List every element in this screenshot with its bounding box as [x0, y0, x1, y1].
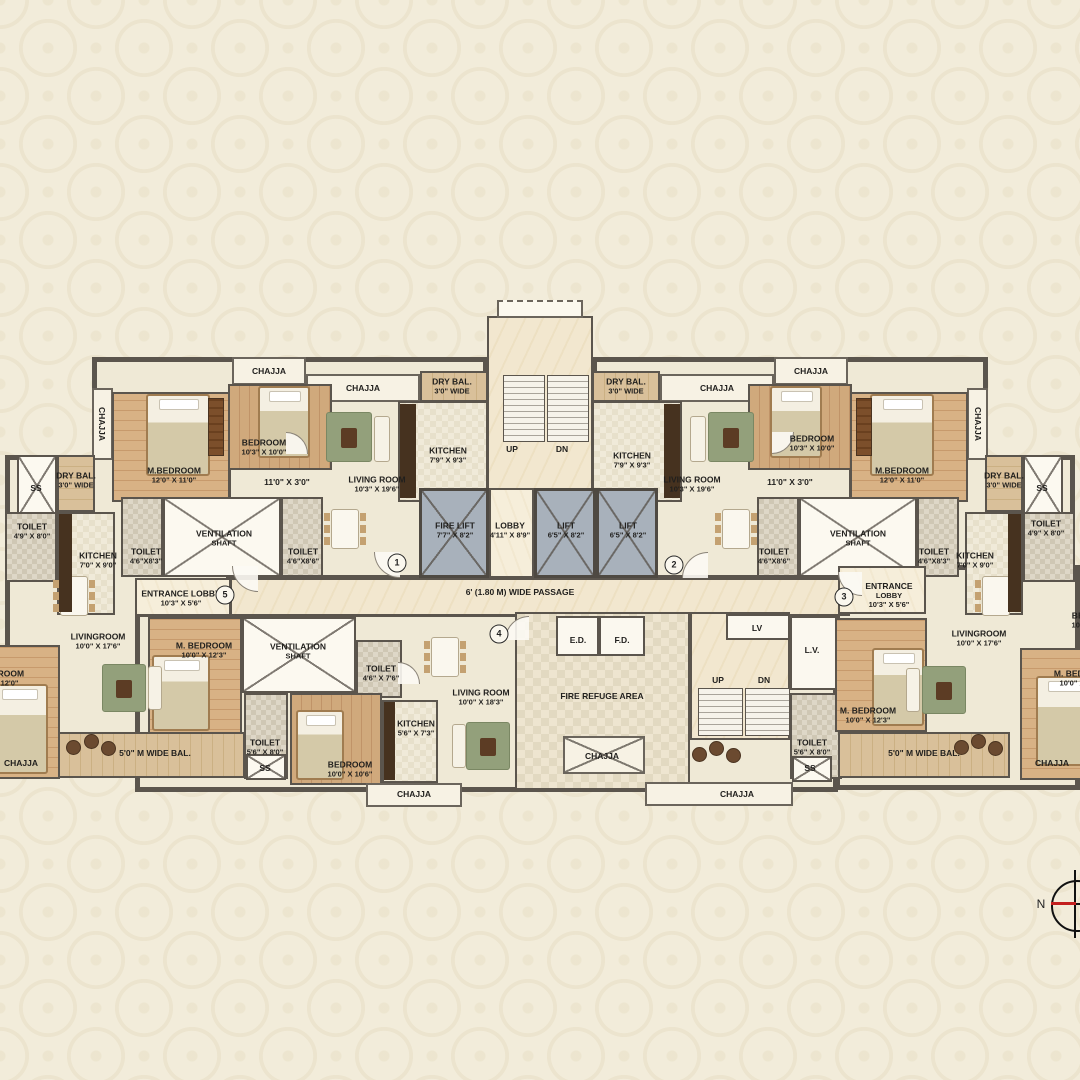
room-name-text: DN: [758, 675, 770, 685]
stair-flight-up: [503, 375, 545, 442]
room-dimension-text: 7'0" X 9'0": [956, 561, 994, 570]
room-name-text: CHAJJA: [585, 751, 619, 761]
furniture-ward-icon: [856, 398, 872, 456]
room-dimension-text: 10'0" X 12'3": [840, 716, 896, 725]
room-name-text: CHAJJA: [720, 789, 754, 799]
room-label: TOILET5'6" X 8'0": [247, 737, 284, 756]
room-label: TOILET5'6" X 8'0": [794, 737, 831, 756]
top-ledge: [497, 300, 583, 318]
room-name-text: TOILET: [130, 546, 162, 556]
room-name-text: CHAJJA: [1035, 758, 1069, 768]
room-name-text: LIVING ROOM: [348, 474, 405, 484]
room-name-text: CHAJJA: [397, 789, 431, 799]
room-name-text: UP: [712, 675, 724, 685]
room-name-text: FIRE LIFT: [435, 520, 475, 530]
room-name-text: KITCHEN: [956, 550, 994, 560]
room-dimension-text: SHAFT: [830, 539, 886, 548]
room-label: LIFT6'5" X 8'2": [548, 520, 585, 539]
room-name-text: LOBBY: [490, 520, 530, 530]
furniture-sofa-icon: [906, 668, 920, 712]
room-name-text: 5'0" M WIDE BAL.: [119, 748, 191, 758]
furniture-bed-icon: [146, 394, 210, 476]
room-label: SS: [1036, 483, 1047, 493]
furniture-sofa-icon: [374, 416, 390, 462]
room-label: 11'0" X 3'0": [767, 477, 813, 487]
furniture-bch-icon: [692, 747, 707, 762]
room-label: DRY BAL.3'0" WIDE: [432, 376, 472, 395]
room-label: SS: [30, 483, 41, 493]
room-label: M. BEDROOM10'0" X 12'3": [840, 705, 896, 724]
room-name-text: 11'0" X 3'0": [264, 477, 310, 487]
room-label: ENTRANCELOBBY10'3" X 5'6": [865, 581, 912, 609]
room-label: CHAJJA: [720, 789, 754, 799]
room-name-text: VENTILATION: [196, 528, 252, 538]
furniture-bch-icon: [101, 741, 116, 756]
furniture-ward-icon: [208, 398, 224, 456]
furniture-ctr-icon: [1008, 514, 1021, 612]
room-name-text: TOILET: [1028, 518, 1065, 528]
room-dimension-text: 5'6" X 7'3": [397, 729, 435, 738]
furniture-sofa-icon: [690, 416, 706, 462]
stair-flight-down: [547, 375, 589, 442]
room-label: TOILET4'6"X8'6": [758, 546, 790, 565]
room-label: LIVING ROOM10'0" X 18'3": [452, 687, 509, 706]
room-name-text: UP: [506, 444, 518, 454]
room-name-text: CHAJJA: [4, 758, 38, 768]
room-dimension-text: SHAFT: [196, 539, 252, 548]
room-label: CHAJJA: [1035, 758, 1069, 768]
room-label: VENTILATIONSHAFT: [270, 641, 326, 660]
room-label: KITCHEN5'6" X 7'3": [397, 718, 435, 737]
room-label: CHAJJA: [97, 407, 107, 441]
room-dimension-text: 4'6" X 7'6": [363, 674, 400, 683]
room-name-text: CHAJJA: [97, 407, 107, 441]
furniture-bch-icon: [988, 741, 1003, 756]
furniture-ctab-icon: [341, 428, 357, 448]
room-dimension-text: 4'6"X8'3": [918, 557, 950, 566]
room-dimension-text: 3'0" WIDE: [432, 387, 472, 396]
room-name-text: 5'0" M WIDE BAL.: [888, 748, 960, 758]
room-label: BEDROOM10'0" X 10'6": [328, 759, 373, 778]
room-dimension-text: 4'6"X8'3": [130, 557, 162, 566]
room-name-text: 6' (1.80 M) WIDE PASSAGE: [466, 587, 575, 597]
room-name-text: DN: [556, 444, 568, 454]
unit-marker-2: 2: [665, 556, 684, 575]
unit-marker-4: 4: [490, 625, 509, 644]
furniture-dine-icon: [722, 509, 750, 549]
room-label: LIVING ROOM10'3" X 19'6": [663, 474, 720, 493]
room-label: KITCHEN7'0" X 9'0": [956, 550, 994, 569]
room-label: FIRE LIFT7'7" X 8'2": [435, 520, 475, 539]
room-name-text: DRY BAL.: [984, 470, 1024, 480]
room-name-text: TOILET: [758, 546, 790, 556]
room-name-text: LV: [752, 623, 762, 633]
room-dimension-text: 7'7" X 8'2": [435, 531, 475, 540]
room-dimension-text: 4'9" X 8'0": [1028, 529, 1065, 538]
room-name-text: DRY BAL.: [606, 376, 646, 386]
room-name-text: F.D.: [614, 635, 629, 645]
room-dimension-text: LOBBY: [865, 591, 912, 600]
room-name-text: LIFT: [548, 520, 585, 530]
room-name-text: KITCHEN: [429, 445, 467, 455]
room-label: L.V.: [805, 645, 820, 655]
room-dimension-text: 4'11" X 8'9": [490, 531, 530, 540]
room-name-text: TOILET: [14, 521, 51, 531]
room-name-text: CHAJJA: [700, 383, 734, 393]
room-label: M. BEDROOM10'0" X 12'3": [176, 640, 232, 659]
furniture-ctr-icon: [384, 702, 395, 780]
room-label: LIFT6'5" X 8'2": [610, 520, 647, 539]
room-name-text: L.V.: [805, 645, 820, 655]
furniture-ctab-icon: [480, 738, 496, 756]
furniture-ctab-icon: [116, 680, 132, 698]
room-dimension-text: 7'0" X 9'0": [79, 561, 117, 570]
room-name-text: CHAJJA: [346, 383, 380, 393]
room-dimension-text: 10'0" X 17'6": [952, 639, 1007, 648]
room-dimension-text: 10'0" X 10'6": [1072, 621, 1080, 630]
room-label: VENTILATIONSHAFT: [830, 528, 886, 547]
room-dimension-text: 10'0" X 18'3": [452, 698, 509, 707]
furniture-ctab-icon: [936, 682, 952, 700]
room-label: 11'0" X 3'0": [264, 477, 310, 487]
room-dimension-text: 10'0" X 12'3": [176, 651, 232, 660]
room-label: M. BEDROOM12'0" X 12'0": [0, 668, 24, 687]
room-label: F.D.: [614, 635, 629, 645]
room-label: DN: [758, 675, 770, 685]
furniture-bed-icon: [870, 394, 934, 476]
room-name-text: BEDROOM: [328, 759, 373, 769]
room-dimension-text: 6'5" X 8'2": [610, 531, 647, 540]
room-name-text: LIFT: [610, 520, 647, 530]
room-dimension-text: 10'3" X 19'6": [663, 485, 720, 494]
room-label: DRY BAL.3'0" WIDE: [984, 470, 1024, 489]
room-name-text: LIVINGROOM: [952, 628, 1007, 638]
room-label: UP: [506, 444, 518, 454]
room-label: TOILET4'6"X8'6": [287, 546, 319, 565]
room-dimension-text: 4'6"X8'6": [287, 557, 319, 566]
room-dimension-text: 10'3" X 5'6": [865, 600, 912, 609]
furniture-ctab-icon: [723, 428, 739, 448]
room-label: TOILET4'6"X8'3": [130, 546, 162, 565]
room-name-text: VENTILATION: [830, 528, 886, 538]
room-name-text: TOILET: [794, 737, 831, 747]
furniture-dine-icon: [331, 509, 359, 549]
room-name-text: TOILET: [918, 546, 950, 556]
room-label: KITCHEN7'9" X 9'3": [429, 445, 467, 464]
room-label: BEDROOM10'0" X 10'6": [1072, 610, 1080, 629]
room-label: CHAJJA: [397, 789, 431, 799]
stair-bottom-flight-down: [745, 688, 790, 736]
room-name-text: KITCHEN: [397, 718, 435, 728]
floor-plan-page: CHAJJACHAJJADRY BAL.3'0" WIDEDRY BAL.3'0…: [0, 0, 1080, 1080]
room-label: KITCHEN7'9" X 9'3": [613, 450, 651, 469]
room-label: CHAJJA: [252, 366, 286, 376]
room-name-text: TOILET: [363, 663, 400, 673]
room-dimension-text: 7'9" X 9'3": [429, 456, 467, 465]
room-name-text: DRY BAL.: [56, 470, 96, 480]
unit-marker-3: 3: [835, 588, 854, 607]
room-dimension-text: 7'9" X 9'3": [613, 461, 651, 470]
room-dimension-text: 4'6"X8'6": [758, 557, 790, 566]
room-name-text: KITCHEN: [613, 450, 651, 460]
room-name-text: SS: [30, 483, 41, 493]
room-name-text: SS: [1036, 483, 1047, 493]
room-dimension-text: 10'0" X 12'3": [1054, 679, 1080, 688]
room-label: SS: [259, 763, 270, 773]
room-label: CHAJJA: [585, 751, 619, 761]
furniture-bed-icon: [1036, 676, 1080, 766]
room-label: M. BEDROOM10'0" X 12'3": [1054, 668, 1080, 687]
room-name-text: DRY BAL.: [432, 376, 472, 386]
floor-plan-canvas: CHAJJACHAJJADRY BAL.3'0" WIDEDRY BAL.3'0…: [0, 0, 1080, 1080]
room-label: CHAJJA: [346, 383, 380, 393]
room-label: LOBBY4'11" X 8'9": [490, 520, 530, 539]
room-name-text: BEDROOM: [1072, 610, 1080, 620]
room-label: BEDROOM10'3" X 10'0": [790, 433, 835, 452]
furniture-bch-icon: [709, 741, 724, 756]
room-name-text: CHAJJA: [252, 366, 286, 376]
furniture-sofa-icon: [452, 724, 466, 768]
room-name-text: CHAJJA: [973, 407, 983, 441]
room-label: E.D.: [570, 635, 587, 645]
furniture-dine-icon: [431, 637, 459, 677]
room-dimension-text: 12'0" X 12'0": [0, 679, 24, 688]
room-label: CHAJJA: [4, 758, 38, 768]
room-name-text: KITCHEN: [79, 550, 117, 560]
room-name-text: SS: [804, 763, 815, 773]
room-name-text: M.BEDROOM: [147, 465, 201, 475]
room-dimension-text: 10'3" X 19'6": [348, 485, 405, 494]
room-label: 6' (1.80 M) WIDE PASSAGE: [466, 587, 575, 597]
room-name-text: CHAJJA: [794, 366, 828, 376]
room-name-text: M. BEDROOM: [176, 640, 232, 650]
room-name-text: TOILET: [287, 546, 319, 556]
room-label: CHAJJA: [794, 366, 828, 376]
room-dimension-text: 6'5" X 8'2": [548, 531, 585, 540]
room-dimension-text: 3'0" WIDE: [606, 387, 646, 396]
room-label: BEDROOM10'3" X 10'0": [242, 437, 287, 456]
room-label: ENTRANCE LOBBY10'3" X 5'6": [141, 588, 220, 607]
room-label: LIVING ROOM10'3" X 19'6": [348, 474, 405, 493]
room-label: SS: [804, 763, 815, 773]
room-label: DRY BAL.3'0" WIDE: [606, 376, 646, 395]
room-label: CHAJJA: [700, 383, 734, 393]
room-dimension-text: 10'3" X 10'0": [242, 448, 287, 457]
compass-horizontal-line: [1076, 903, 1080, 905]
room-dimension-text: 10'0" X 17'6": [71, 642, 126, 651]
room-label: 5'0" M WIDE BAL.: [119, 748, 191, 758]
room-label: LIVINGROOM10'0" X 17'6": [952, 628, 1007, 647]
room-dimension-text: 5'6" X 8'0": [247, 748, 284, 757]
room-label: FIRE REFUGE AREA: [560, 691, 643, 701]
room-label: TOILET4'6"X8'3": [918, 546, 950, 565]
room-name-text: FIRE REFUGE AREA: [560, 691, 643, 701]
room-label: LV: [752, 623, 762, 633]
compass-north-label: N: [1037, 897, 1046, 911]
room-name-text: ENTRANCE: [865, 581, 912, 591]
room-label: TOILET4'9" X 8'0": [14, 521, 51, 540]
room-label: TOILET4'6" X 7'6": [363, 663, 400, 682]
room-label: VENTILATIONSHAFT: [196, 528, 252, 547]
room-label: M.BEDROOM12'0" X 11'0": [147, 465, 201, 484]
furniture-ctr-icon: [59, 514, 72, 612]
room-dimension-text: 10'0" X 10'6": [328, 770, 373, 779]
room-label: DN: [556, 444, 568, 454]
stair-bottom-flight-up: [698, 688, 743, 736]
compass-north-needle-icon: [1051, 902, 1076, 905]
room-dimension-text: 12'0" X 11'0": [875, 476, 929, 485]
room-label: LIVINGROOM10'0" X 17'6": [71, 631, 126, 650]
room-dimension-text: 10'3" X 10'0": [790, 444, 835, 453]
room-name-text: M. BEDROOM: [0, 668, 24, 678]
room-label: UP: [712, 675, 724, 685]
room-label: CHAJJA: [973, 407, 983, 441]
room-name-text: M.BEDROOM: [875, 465, 929, 475]
room-dimension-text: 5'6" X 8'0": [794, 748, 831, 757]
room-name-text: LIVINGROOM: [71, 631, 126, 641]
room-name-text: TOILET: [247, 737, 284, 747]
room-name-text: ENTRANCE LOBBY: [141, 588, 220, 598]
furniture-bch-icon: [84, 734, 99, 749]
room-name-text: M. BEDROOM: [1054, 668, 1080, 678]
furniture-bch-icon: [726, 748, 741, 763]
room-dimension-text: 10'3" X 5'6": [141, 599, 220, 608]
room-name-text: SS: [259, 763, 270, 773]
room-name-text: BEDROOM: [790, 433, 835, 443]
room-dimension-text: SHAFT: [270, 652, 326, 661]
room-label: KITCHEN7'0" X 9'0": [79, 550, 117, 569]
furniture-dine-icon: [982, 576, 1010, 616]
room-dimension-text: 4'9" X 8'0": [14, 532, 51, 541]
room-dimension-text: 3'0" WIDE: [56, 481, 96, 490]
room-label: 5'0" M WIDE BAL.: [888, 748, 960, 758]
room-label: M.BEDROOM12'0" X 11'0": [875, 465, 929, 484]
unit-marker-1: 1: [388, 554, 407, 573]
room-name-text: BEDROOM: [242, 437, 287, 447]
room-name-text: 11'0" X 3'0": [767, 477, 813, 487]
room-name-text: LIVING ROOM: [663, 474, 720, 484]
room-label: DRY BAL.3'0" WIDE: [56, 470, 96, 489]
furniture-bch-icon: [971, 734, 986, 749]
furniture-sofa-icon: [148, 666, 162, 710]
furniture-bch-icon: [66, 740, 81, 755]
room-label: TOILET4'9" X 8'0": [1028, 518, 1065, 537]
room-dimension-text: 12'0" X 11'0": [147, 476, 201, 485]
room-name-text: VENTILATION: [270, 641, 326, 651]
room-name-text: M. BEDROOM: [840, 705, 896, 715]
unit-marker-5: 5: [216, 586, 235, 605]
room-name-text: E.D.: [570, 635, 587, 645]
room-dimension-text: 3'0" WIDE: [984, 481, 1024, 490]
room-name-text: LIVING ROOM: [452, 687, 509, 697]
